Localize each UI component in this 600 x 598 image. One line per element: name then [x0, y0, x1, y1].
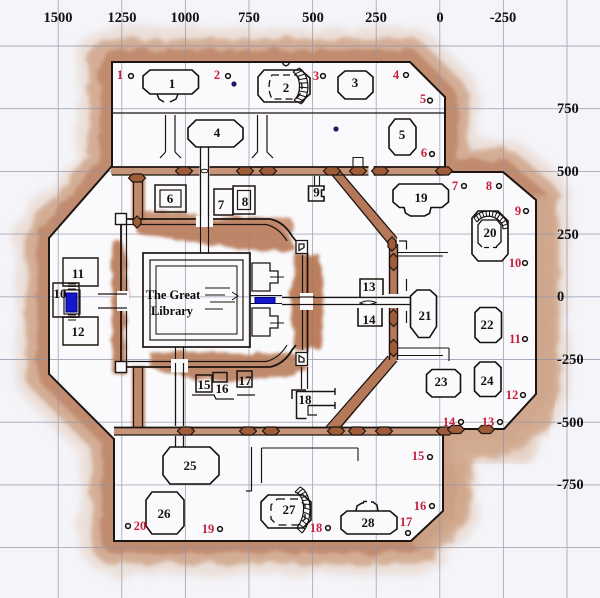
svg-text:20: 20 — [134, 519, 147, 533]
svg-text:7: 7 — [452, 179, 458, 193]
svg-text:4: 4 — [214, 125, 221, 140]
svg-text:750: 750 — [557, 101, 579, 117]
svg-text:15: 15 — [198, 377, 212, 392]
svg-text:19: 19 — [202, 522, 215, 536]
svg-text:500: 500 — [557, 164, 579, 180]
svg-text:22: 22 — [481, 317, 494, 332]
svg-text:500: 500 — [302, 10, 324, 26]
svg-text:9: 9 — [313, 185, 320, 200]
svg-text:24: 24 — [481, 373, 495, 388]
svg-text:6: 6 — [421, 146, 427, 160]
svg-text:13: 13 — [363, 279, 377, 294]
svg-text:20: 20 — [484, 225, 497, 240]
svg-text:250: 250 — [557, 227, 579, 243]
svg-text:2: 2 — [283, 80, 290, 95]
svg-text:1000: 1000 — [171, 10, 200, 26]
svg-text:16: 16 — [216, 381, 230, 396]
svg-text:8: 8 — [242, 194, 249, 209]
svg-text:1: 1 — [169, 76, 176, 91]
svg-text:26: 26 — [158, 506, 172, 521]
svg-text:The Great: The Great — [146, 288, 201, 302]
svg-text:-250: -250 — [557, 352, 584, 368]
svg-text:3: 3 — [352, 75, 359, 90]
svg-text:750: 750 — [238, 10, 260, 26]
svg-text:14: 14 — [443, 415, 456, 429]
svg-text:0: 0 — [436, 10, 443, 26]
svg-text:11: 11 — [72, 266, 84, 281]
svg-text:-750: -750 — [557, 477, 584, 493]
svg-text:15: 15 — [412, 449, 425, 463]
svg-text:7: 7 — [218, 197, 225, 212]
svg-text:10: 10 — [54, 286, 67, 301]
svg-text:1: 1 — [117, 68, 123, 82]
svg-text:250: 250 — [365, 10, 387, 26]
svg-text:17: 17 — [239, 373, 253, 388]
svg-text:Library: Library — [151, 304, 194, 318]
svg-text:9: 9 — [515, 204, 521, 218]
svg-text:-500: -500 — [557, 415, 584, 431]
svg-text:27: 27 — [283, 502, 297, 517]
svg-text:18: 18 — [299, 392, 313, 407]
svg-text:19: 19 — [415, 190, 429, 205]
svg-text:21: 21 — [419, 308, 432, 323]
svg-text:14: 14 — [363, 312, 377, 327]
svg-text:1500: 1500 — [44, 10, 73, 26]
svg-text:25: 25 — [184, 458, 198, 473]
svg-text:13: 13 — [482, 415, 495, 429]
svg-text:10: 10 — [509, 256, 522, 270]
svg-text:2: 2 — [214, 68, 220, 82]
svg-text:5: 5 — [420, 92, 426, 106]
svg-text:8: 8 — [486, 179, 492, 193]
svg-text:23: 23 — [435, 374, 449, 389]
svg-text:0: 0 — [557, 289, 564, 305]
svg-text:4: 4 — [393, 68, 400, 82]
svg-text:28: 28 — [362, 515, 376, 530]
svg-text:6: 6 — [167, 191, 174, 206]
svg-text:16: 16 — [414, 499, 427, 513]
svg-text:12: 12 — [72, 324, 85, 339]
svg-text:11: 11 — [509, 332, 521, 346]
svg-text:5: 5 — [399, 127, 406, 142]
svg-text:-250: -250 — [490, 10, 517, 26]
svg-text:12: 12 — [506, 388, 519, 402]
svg-text:3: 3 — [313, 69, 319, 83]
svg-text:17: 17 — [400, 515, 413, 529]
svg-text:1250: 1250 — [108, 10, 137, 26]
svg-text:18: 18 — [310, 521, 323, 535]
